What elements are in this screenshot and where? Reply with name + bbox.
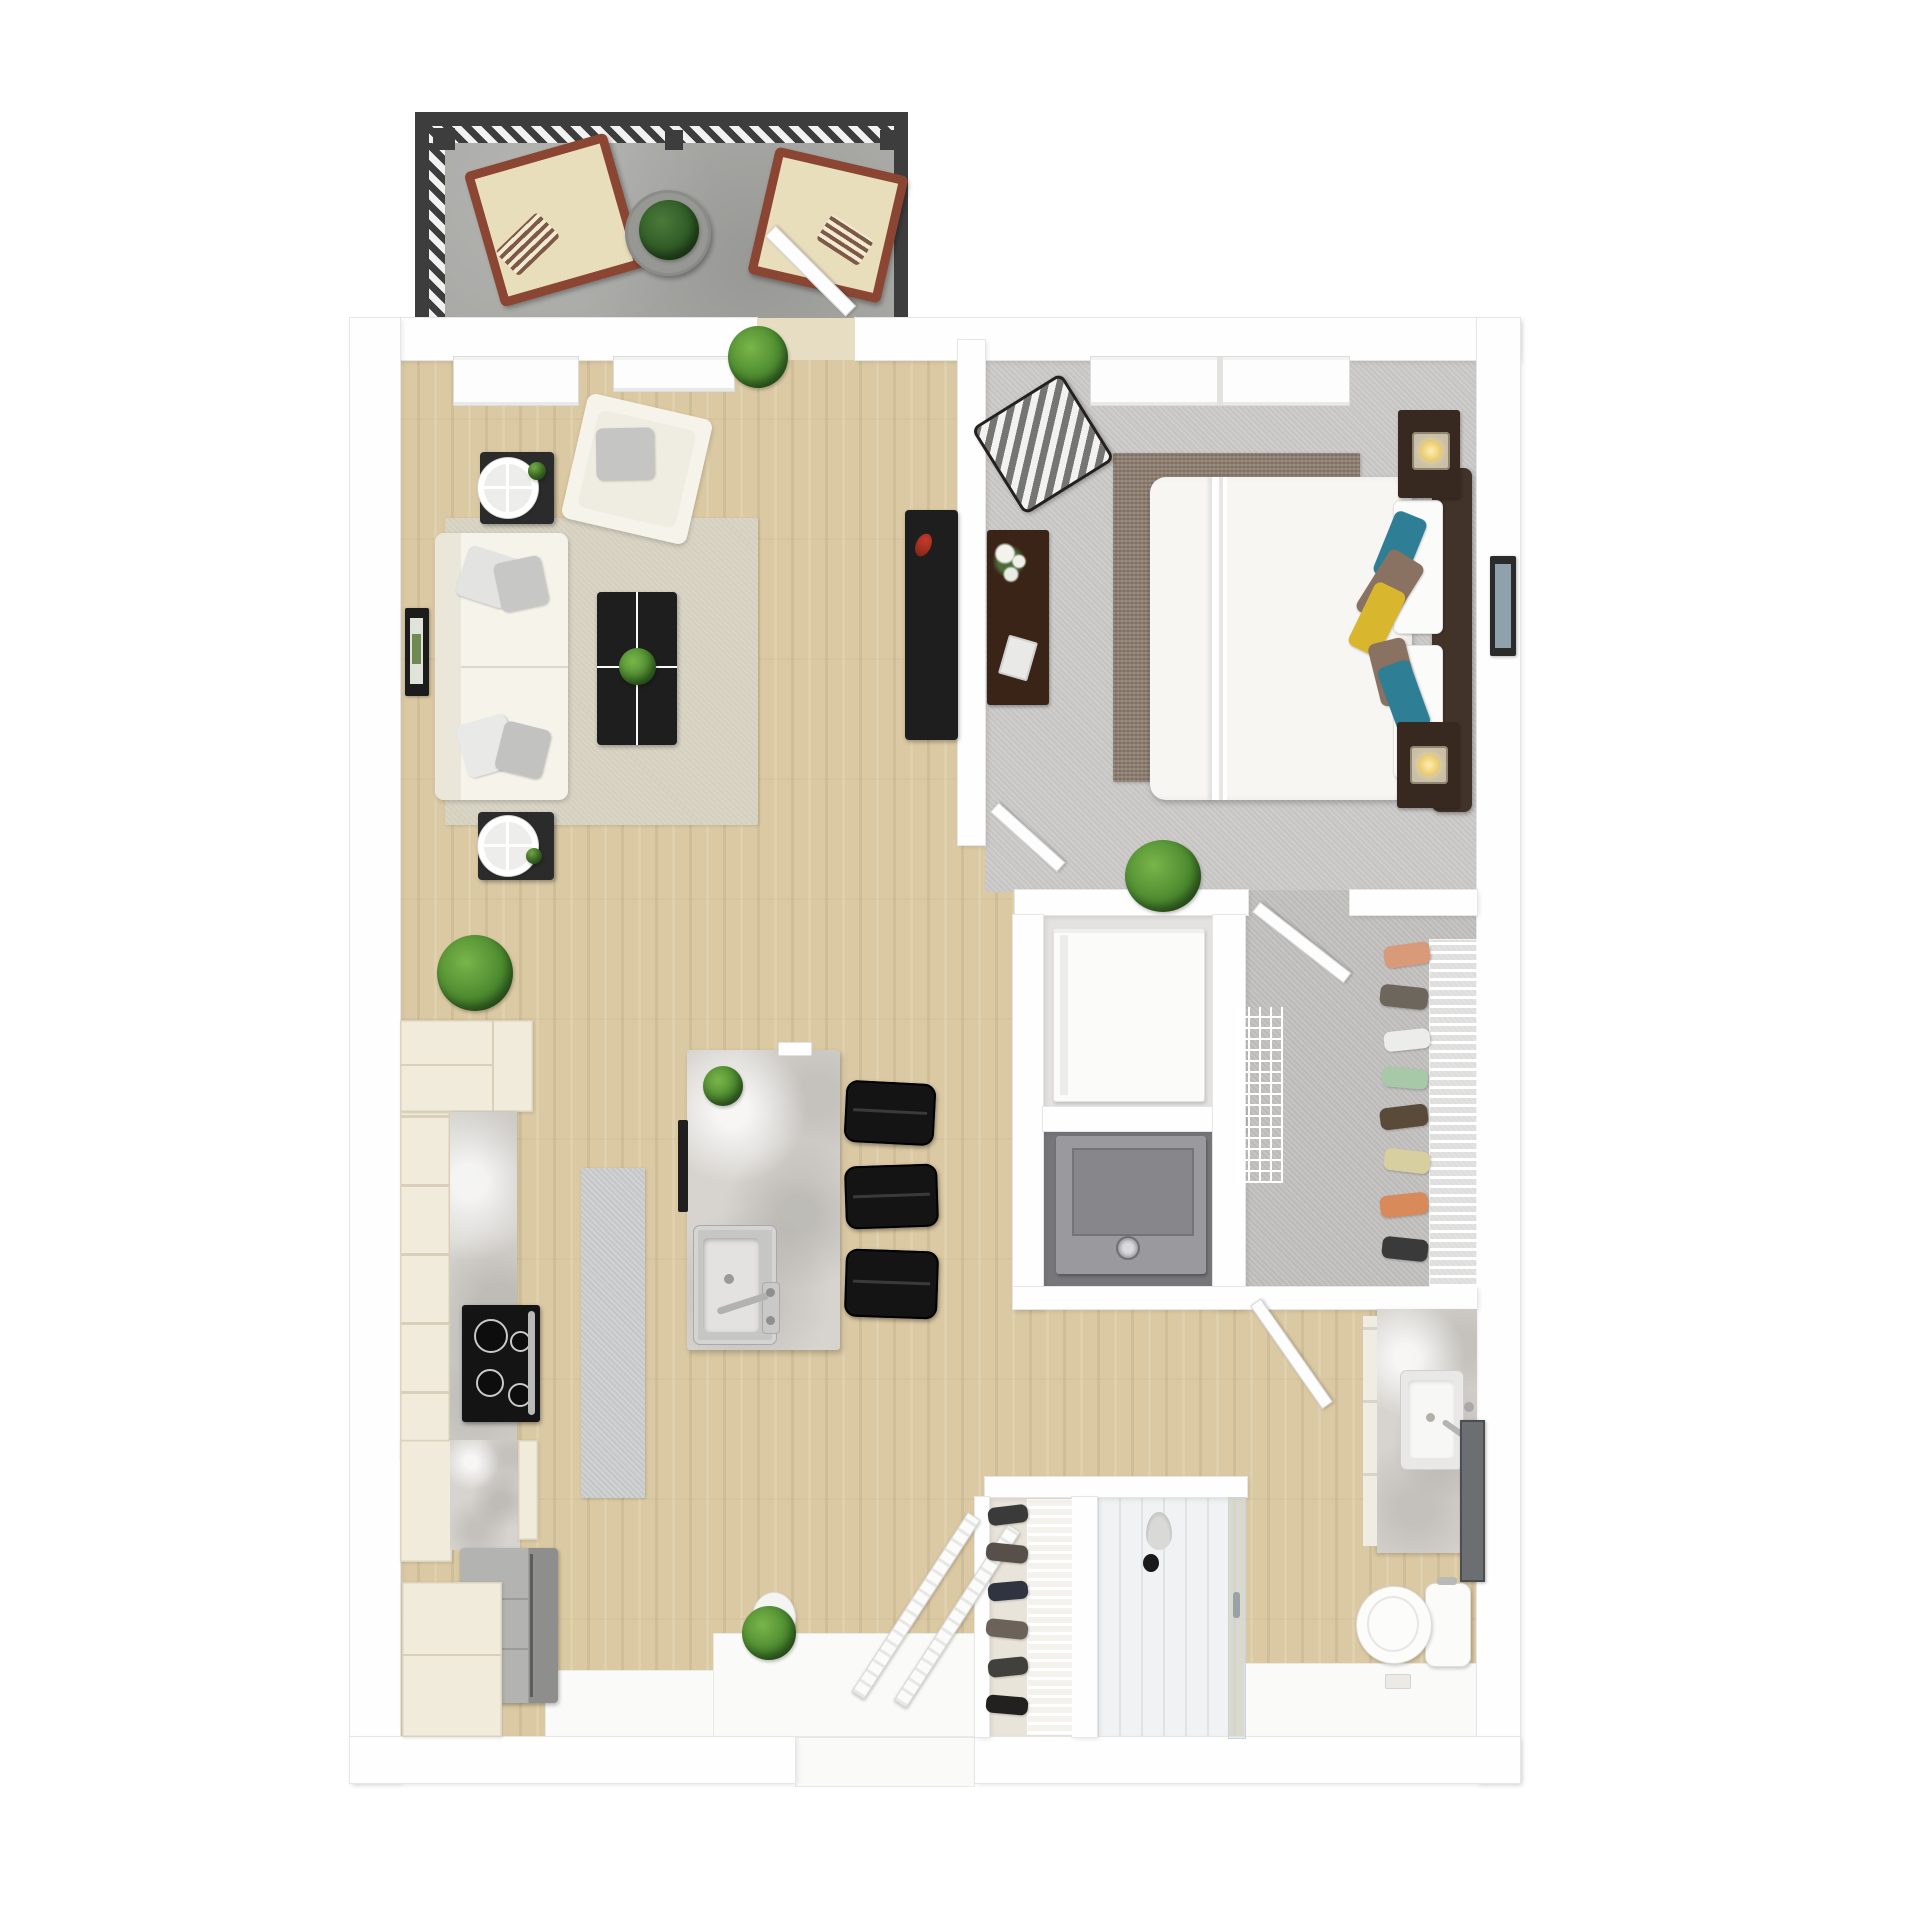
wall-left [350,318,400,1783]
shower-glass-panel [1228,1497,1246,1739]
balcony-railing-left [415,112,429,318]
railing-post-right [880,130,900,150]
wall-bedroom-bottom-right [1350,890,1477,915]
kitchen-runner-rug [581,1168,645,1498]
cabinet-side-panel [518,1440,538,1540]
window-mullion [1217,357,1223,405]
wall-closet-bottom [1013,1287,1477,1309]
wall-art [405,608,429,696]
nightstand-lamp [1412,432,1450,470]
sofa-pillow [492,555,549,614]
bar-stool [843,1080,936,1147]
toilet-bowl [1356,1586,1432,1664]
dresser [987,530,1049,705]
sofa-back [435,533,461,800]
wall-living-bedroom [958,340,985,845]
balcony-railing-top [415,112,908,126]
sink-drain [1426,1413,1435,1422]
wall-top-right-of-door [855,318,1520,360]
window-plant [728,326,788,388]
dresser-flowers [993,538,1033,590]
striped-pillow [816,214,874,266]
bedroom-wall-art [1490,556,1516,656]
bar-stool [844,1248,939,1319]
sofa-cushion-split [461,666,568,668]
wall-bottom-right [975,1737,1520,1783]
entry-shoes [986,1504,1030,1734]
corner-cabinet [402,1582,502,1737]
entry-topiary [742,1606,796,1660]
range-cooktop [462,1305,540,1422]
duvet-fold [1212,477,1219,800]
island-plant [703,1066,743,1106]
white-appliance [1053,928,1205,1102]
leaning-mirror [1460,1420,1485,1582]
armchair-pillow [596,427,655,480]
washer-dryer [1056,1136,1206,1274]
wall-hall-south [985,1477,1247,1497]
oven-handle [528,1311,535,1415]
coffee-table-plant [619,648,656,685]
island-towel [778,1042,812,1056]
toilet-flush-button [1437,1577,1457,1585]
island-faucet-handle [766,1316,775,1325]
bar-stool [844,1163,939,1229]
table-lamp [478,816,538,876]
vanity-cabinet-front [1363,1316,1377,1546]
wall-closet-shower [1072,1497,1097,1737]
bedroom-window [1090,356,1350,406]
island-faucet-handle [766,1288,775,1297]
railing-post-middle [665,130,683,150]
wire-shelf-unit [1237,1007,1283,1183]
bathroom-tile-floor [1244,1663,1477,1737]
faucet-handle [1464,1402,1474,1412]
sofa-pillow [494,720,553,780]
lamp-plant [528,462,546,480]
entry-threshold [795,1737,975,1787]
kitchen-cabinet-fronts [400,1112,450,1460]
striped-pillow [495,212,560,277]
tp-holder [1385,1674,1411,1689]
lamp-plant [526,848,542,864]
shoe-rack [1430,940,1477,1287]
entry-shoe-rack [1028,1500,1072,1734]
pantry-cabinet [400,1020,533,1112]
island-sink-drain [724,1274,734,1284]
living-window-1 [453,356,579,406]
floor-plant [437,935,513,1011]
sofa [435,533,568,800]
island-side-accent [678,1120,688,1212]
wall-utility-left [1013,915,1043,1309]
railing-post-left [433,128,455,150]
balcony-railing-slats-left [429,143,445,318]
vanity-sink [1400,1370,1464,1470]
shower-glass-handle [1233,1592,1240,1618]
balcony-plant [639,200,699,260]
bedroom-plant [1125,840,1201,912]
wall-top-left-of-door [350,318,757,360]
nightstand-lamp [1410,746,1448,784]
balcony-railing-slats-top [429,126,894,143]
lower-counter [450,1440,520,1550]
shower-head-pendant [1146,1512,1172,1550]
washer-knob [1116,1236,1140,1260]
shower-drain-dot [1143,1554,1159,1572]
closet-shoes [1378,942,1434,1287]
wall-bottom-left [350,1737,795,1783]
living-window-2 [613,356,735,392]
lower-cabinet [400,1440,452,1562]
floor-plan [0,0,1920,1920]
dresser-book [998,635,1038,682]
